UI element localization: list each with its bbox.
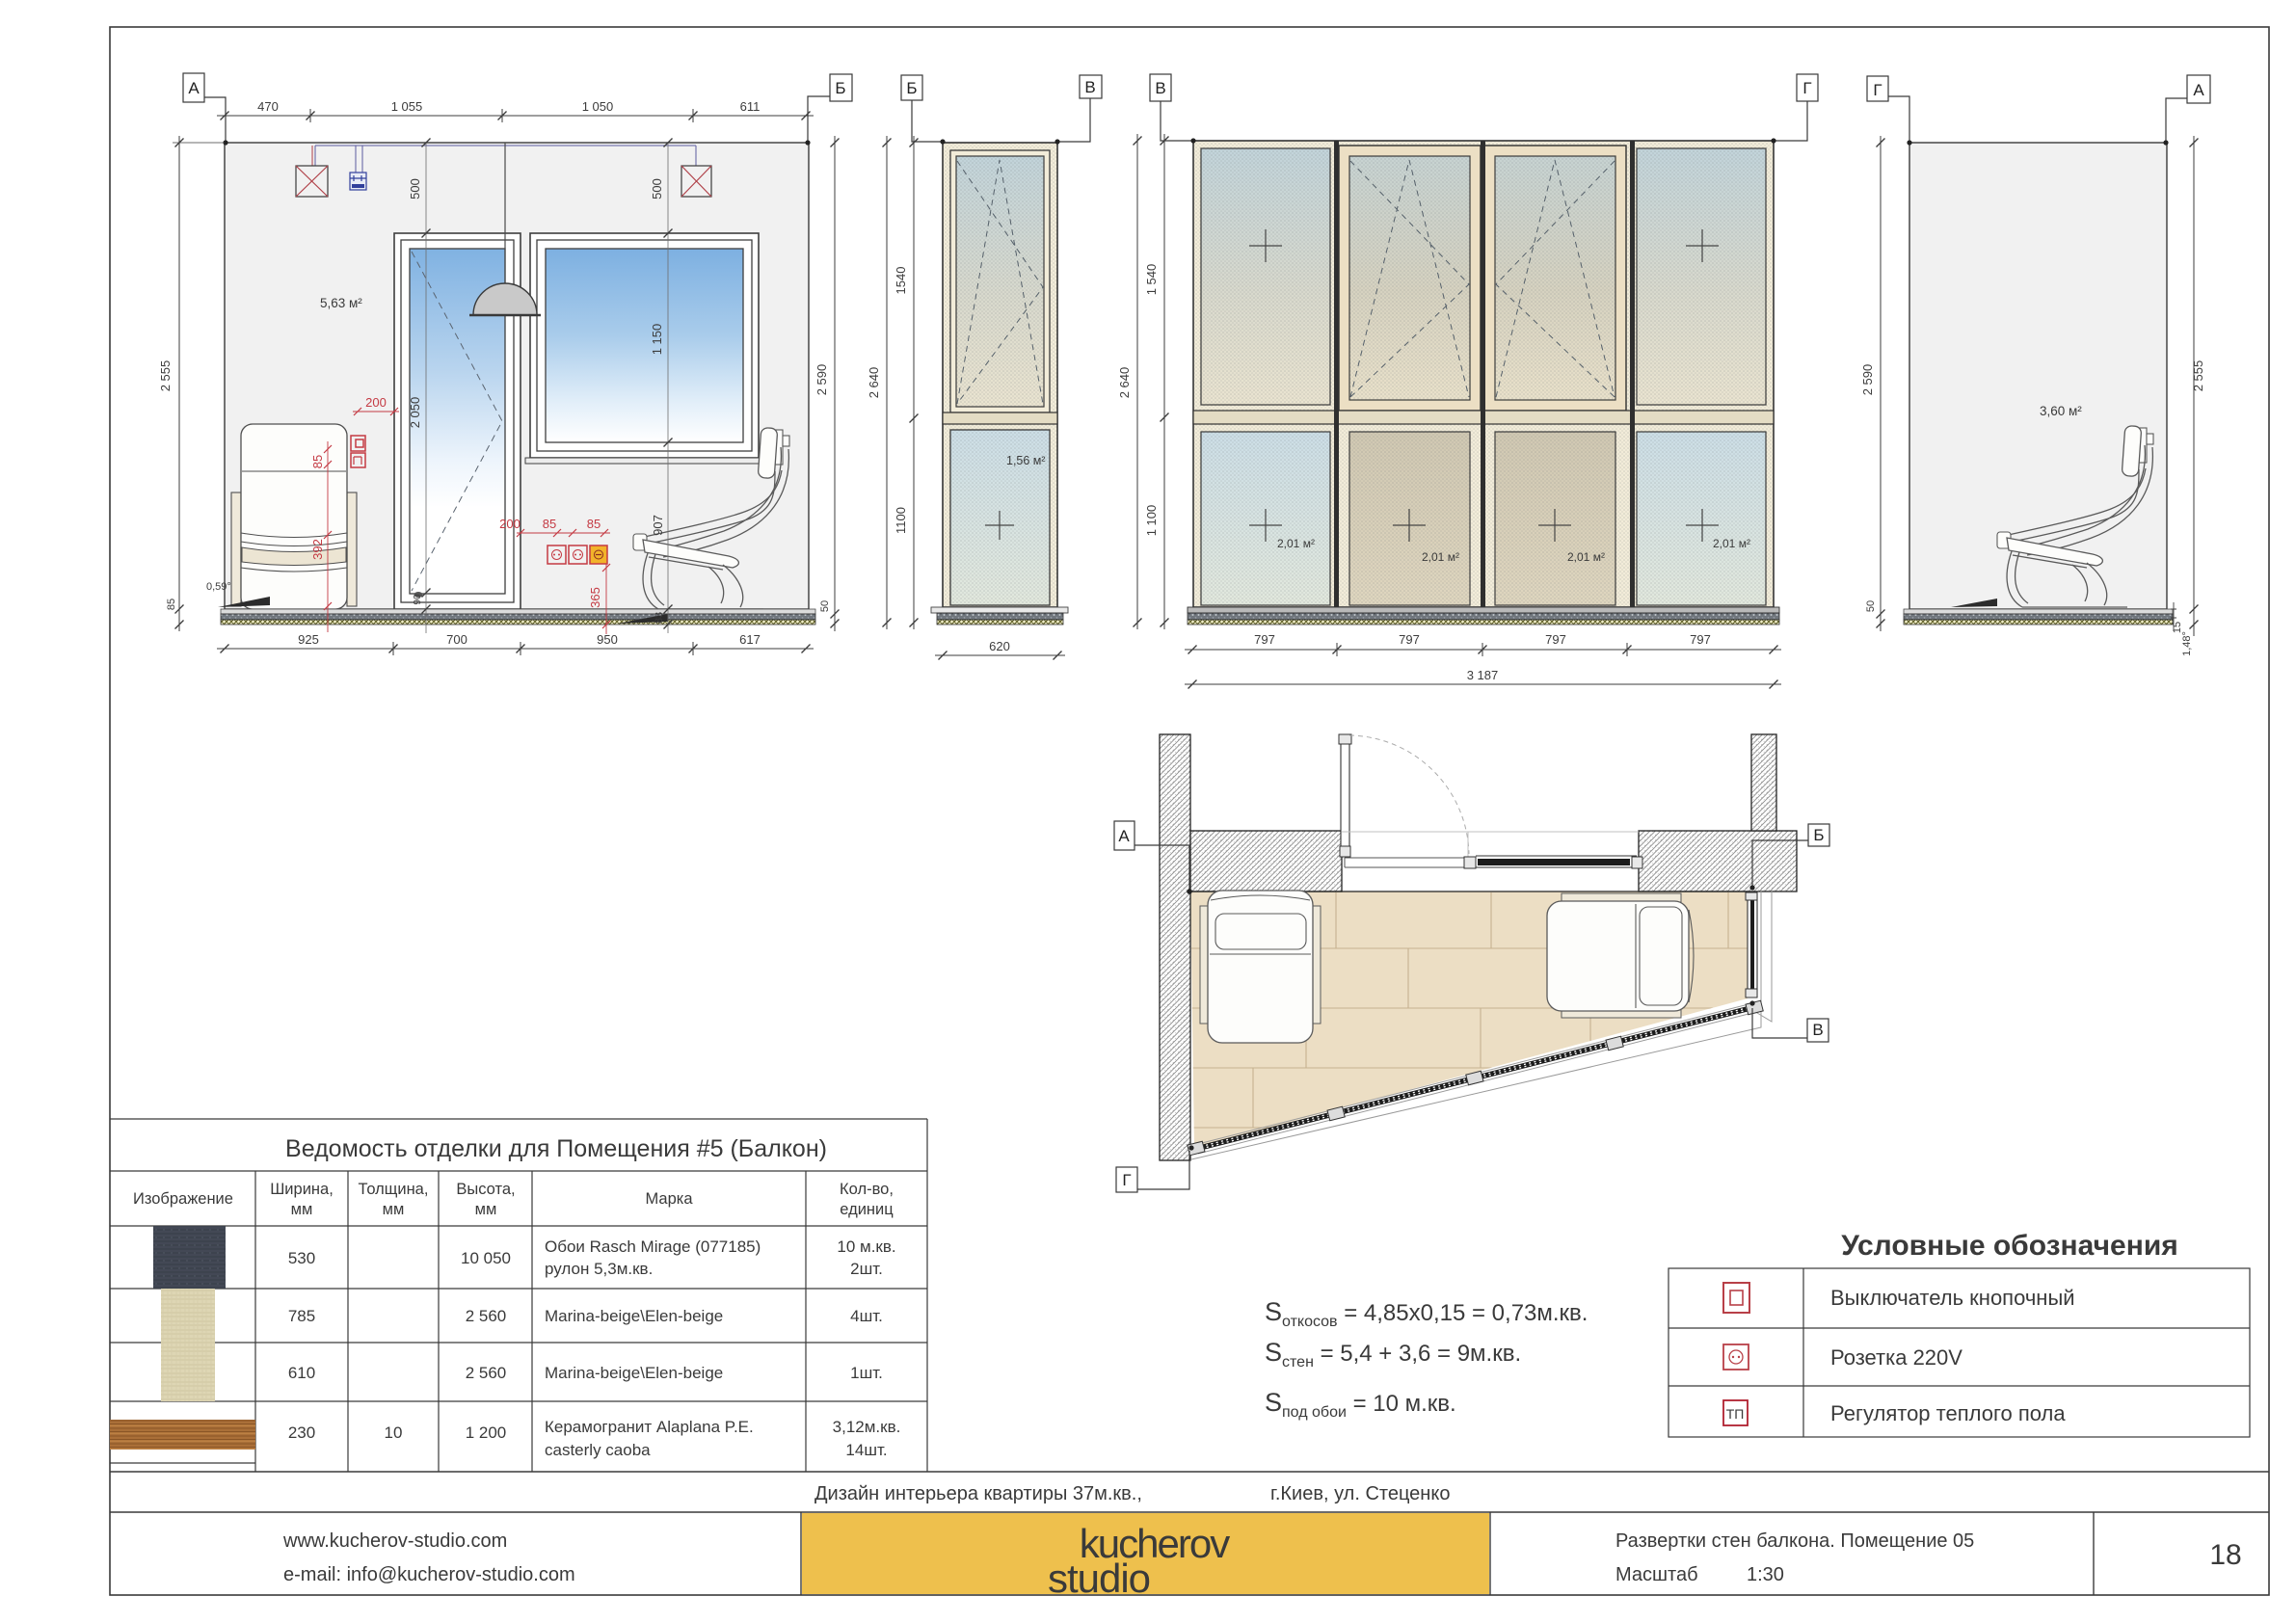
svg-text:Розетка 220V: Розетка 220V <box>1830 1345 1962 1370</box>
svg-text:2 560: 2 560 <box>466 1307 507 1325</box>
svg-text:10 м.кв.: 10 м.кв. <box>837 1237 895 1256</box>
svg-text:90: 90 <box>413 594 423 605</box>
svg-text:610: 610 <box>288 1364 315 1382</box>
svg-text:А: А <box>1118 827 1130 845</box>
svg-text:500: 500 <box>650 178 664 200</box>
svg-text:Развертки стен балкона. Помеще: Развертки стен балкона. Помещение 05 <box>1615 1530 1974 1552</box>
svg-text:www.kucherov-studio.com: www.kucherov-studio.com <box>282 1530 507 1552</box>
svg-text:2 590: 2 590 <box>1860 364 1875 396</box>
svg-text:785: 785 <box>288 1307 315 1325</box>
svg-text:797: 797 <box>1690 632 1711 647</box>
svg-text:200: 200 <box>365 395 387 410</box>
svg-text:В: В <box>1812 1021 1823 1039</box>
svg-text:230: 230 <box>288 1423 315 1442</box>
svg-text:Регулятор теплого пола: Регулятор теплого пола <box>1830 1401 2066 1425</box>
svg-text:В: В <box>1084 78 1095 96</box>
svg-text:Условные обозначения: Условные обозначения <box>1841 1230 2178 1262</box>
svg-text:г.Киев, ул. Стеценко: г.Киев, ул. Стеценко <box>1270 1483 1450 1504</box>
svg-text:Изображение: Изображение <box>133 1190 233 1208</box>
svg-text:50: 50 <box>1865 600 1877 612</box>
svg-text:Б: Б <box>1813 826 1824 844</box>
svg-text:365: 365 <box>588 587 602 608</box>
svg-text:Ведомость отделки для Помещени: Ведомость отделки для Помещения #5 (Балк… <box>285 1135 827 1162</box>
svg-text:e-mail: info@kucherov-studio.c: e-mail: info@kucherov-studio.com <box>283 1564 575 1585</box>
svg-text:85: 85 <box>543 517 556 531</box>
svg-text:А: А <box>2193 81 2204 99</box>
svg-text:2,01 м²: 2,01 м² <box>1422 550 1459 564</box>
svg-text:2,01 м²: 2,01 м² <box>1567 550 1605 564</box>
svg-text:Дизайн интерьера квартиры 37м.: Дизайн интерьера квартиры 37м.кв., <box>814 1483 1142 1504</box>
svg-text:1 050: 1 050 <box>582 99 614 114</box>
svg-text:83: 83 <box>654 612 665 624</box>
svg-text:В: В <box>1155 79 1165 97</box>
svg-text:797: 797 <box>1545 632 1566 647</box>
svg-text:1 200: 1 200 <box>466 1423 507 1442</box>
svg-text:50: 50 <box>819 600 831 612</box>
svg-text:1:30: 1:30 <box>1747 1564 1784 1585</box>
svg-text:2 050: 2 050 <box>408 397 422 429</box>
svg-text:2 640: 2 640 <box>867 367 881 399</box>
svg-text:Б: Б <box>835 79 845 97</box>
svg-text:Толщина,: Толщина, <box>359 1181 429 1198</box>
svg-text:797: 797 <box>1254 632 1275 647</box>
svg-text:2шт.: 2шт. <box>850 1260 883 1278</box>
svg-text:620: 620 <box>989 639 1010 653</box>
svg-text:casterly caoba: casterly caoba <box>545 1441 651 1459</box>
svg-text:950: 950 <box>597 632 618 647</box>
svg-text:907: 907 <box>651 515 665 536</box>
svg-text:3,60 м²: 3,60 м² <box>2040 404 2082 418</box>
svg-text:А: А <box>188 79 200 97</box>
svg-text:85: 85 <box>587 517 601 531</box>
svg-text:392: 392 <box>310 539 325 560</box>
svg-text:500: 500 <box>408 178 422 200</box>
svg-text:2 590: 2 590 <box>814 364 829 396</box>
svg-text:ТП: ТП <box>1726 1406 1745 1422</box>
svg-text:4шт.: 4шт. <box>850 1307 883 1325</box>
svg-text:2 640: 2 640 <box>1117 367 1132 399</box>
svg-text:Г: Г <box>1873 81 1882 99</box>
svg-text:3 187: 3 187 <box>1467 668 1499 682</box>
svg-text:Выключатель кнопочный: Выключатель кнопочный <box>1830 1286 2075 1310</box>
svg-text:1,56 м²: 1,56 м² <box>1006 454 1046 467</box>
svg-text:2 555: 2 555 <box>2191 360 2205 392</box>
svg-text:200: 200 <box>499 517 521 531</box>
svg-text:1 150: 1 150 <box>650 324 664 356</box>
svg-text:Кол-во,: Кол-во, <box>840 1181 894 1198</box>
svg-text:мм: мм <box>383 1201 405 1218</box>
svg-text:мм: мм <box>475 1201 497 1218</box>
svg-text:Обои Rasch Mirage (077185): Обои Rasch Mirage (077185) <box>545 1237 761 1256</box>
svg-text:мм: мм <box>291 1201 313 1218</box>
svg-text:рулон 5,3м.кв.: рулон 5,3м.кв. <box>545 1260 653 1278</box>
svg-text:14шт.: 14шт. <box>845 1441 887 1459</box>
svg-text:1540: 1540 <box>894 267 908 295</box>
svg-text:2 555: 2 555 <box>158 360 173 392</box>
svg-text:85: 85 <box>310 455 325 468</box>
svg-text:Марка: Марка <box>645 1190 693 1208</box>
svg-text:Ширина,: Ширина, <box>270 1181 334 1198</box>
svg-text:1 055: 1 055 <box>391 99 423 114</box>
svg-text:10 050: 10 050 <box>461 1249 511 1267</box>
svg-text:Marina-beige\Elen-beige: Marina-beige\Elen-beige <box>545 1307 723 1325</box>
svg-text:2,01 м²: 2,01 м² <box>1713 537 1750 550</box>
svg-text:единиц: единиц <box>840 1201 894 1218</box>
svg-text:Масштаб: Масштаб <box>1615 1564 1698 1585</box>
svg-text:797: 797 <box>1399 632 1420 647</box>
svg-text:Г: Г <box>1802 79 1811 97</box>
svg-text:2,01 м²: 2,01 м² <box>1277 537 1315 550</box>
svg-text:700: 700 <box>446 632 467 647</box>
svg-text:617: 617 <box>739 632 761 647</box>
svg-text:Б: Б <box>906 79 917 97</box>
svg-text:925: 925 <box>298 632 319 647</box>
svg-text:530: 530 <box>288 1249 315 1267</box>
svg-text:1шт.: 1шт. <box>850 1364 883 1382</box>
svg-text:470: 470 <box>257 99 279 114</box>
svg-text:0,59°: 0,59° <box>206 581 231 593</box>
svg-text:2 560: 2 560 <box>466 1364 507 1382</box>
svg-text:18: 18 <box>2209 1539 2241 1571</box>
svg-text:Керамогранит Alaplana P.E.: Керамогранит Alaplana P.E. <box>545 1418 754 1436</box>
svg-text:3,12м.кв.: 3,12м.кв. <box>833 1418 901 1436</box>
svg-text:611: 611 <box>740 99 761 114</box>
svg-text:Г: Г <box>1122 1171 1131 1189</box>
svg-text:studio: studio <box>1048 1556 1150 1601</box>
svg-text:1 100: 1 100 <box>1144 505 1159 537</box>
svg-text:1,48°: 1,48° <box>2181 631 2193 656</box>
svg-text:Высота,: Высота, <box>456 1181 515 1198</box>
svg-text:1100: 1100 <box>894 507 908 534</box>
svg-text:10: 10 <box>385 1423 403 1442</box>
svg-text:85: 85 <box>166 599 177 610</box>
svg-text:Marina-beige\Elen-beige: Marina-beige\Elen-beige <box>545 1364 723 1382</box>
svg-text:5,63 м²: 5,63 м² <box>320 296 362 310</box>
svg-text:1 540: 1 540 <box>1144 264 1159 296</box>
